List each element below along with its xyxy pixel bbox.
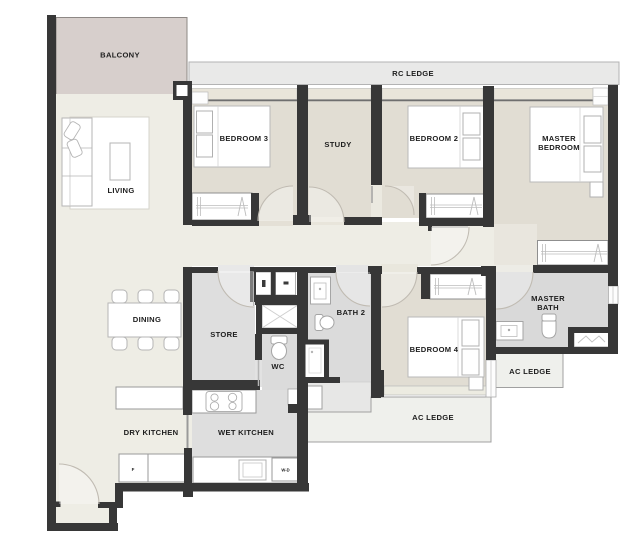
svg-text:STORE: STORE xyxy=(210,330,238,339)
svg-text:AC LEDGE: AC LEDGE xyxy=(412,413,454,422)
svg-text:BEDROOM: BEDROOM xyxy=(538,143,580,152)
svg-text:BATH 2: BATH 2 xyxy=(337,308,366,317)
svg-text:DRY KITCHEN: DRY KITCHEN xyxy=(124,428,179,437)
svg-text:MASTER: MASTER xyxy=(531,294,565,303)
svg-text:BEDROOM 3: BEDROOM 3 xyxy=(220,134,269,143)
svg-text:LIVING: LIVING xyxy=(107,186,134,195)
svg-text:STUDY: STUDY xyxy=(324,140,351,149)
svg-text:DINING: DINING xyxy=(133,315,161,324)
svg-text:BEDROOM 4: BEDROOM 4 xyxy=(410,345,459,354)
svg-text:AC LEDGE: AC LEDGE xyxy=(509,367,551,376)
svg-text:W-D: W-D xyxy=(281,468,289,473)
svg-text:WET KITCHEN: WET KITCHEN xyxy=(218,428,274,437)
svg-text:BATH: BATH xyxy=(537,303,559,312)
svg-text:BALCONY: BALCONY xyxy=(100,51,140,60)
svg-text:BEDROOM 2: BEDROOM 2 xyxy=(410,134,459,143)
svg-text:RC LEDGE: RC LEDGE xyxy=(392,69,434,78)
svg-text:WC: WC xyxy=(271,362,284,371)
svg-text:F: F xyxy=(132,467,135,472)
svg-text:MASTER: MASTER xyxy=(542,134,576,143)
